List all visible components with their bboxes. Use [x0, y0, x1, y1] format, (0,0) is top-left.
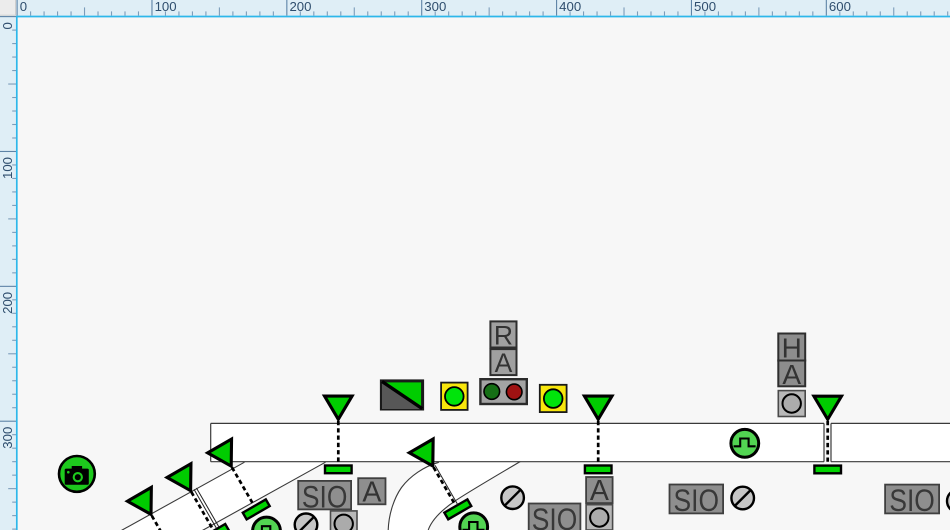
- svg-text:SIO: SIO: [302, 478, 348, 514]
- svg-text:A: A: [782, 359, 801, 390]
- svg-text:SIO: SIO: [889, 482, 935, 518]
- svg-text:0: 0: [20, 0, 27, 14]
- svg-text:0: 0: [0, 22, 15, 29]
- svg-text:200: 200: [0, 292, 15, 314]
- svg-text:300: 300: [0, 427, 15, 449]
- svg-text:SIO: SIO: [532, 501, 578, 530]
- svg-text:A: A: [362, 476, 381, 508]
- svg-text:SIO: SIO: [674, 482, 720, 518]
- svg-text:A: A: [495, 348, 513, 378]
- svg-text:100: 100: [0, 157, 15, 179]
- svg-text:R: R: [494, 320, 513, 350]
- svg-text:A: A: [590, 475, 609, 507]
